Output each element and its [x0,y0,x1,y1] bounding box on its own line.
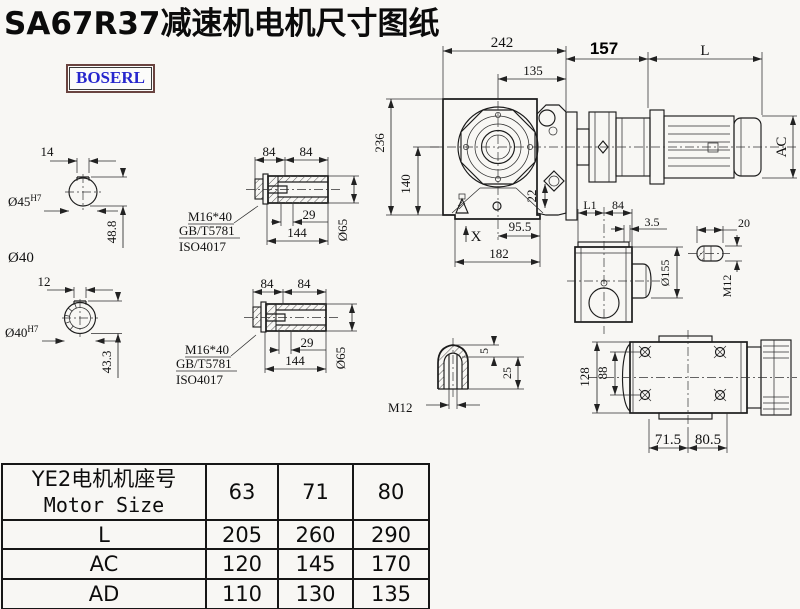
label-bolt: M16*40 [188,209,232,224]
motor-size-table: YE2电机机座号 Motor Size 63 71 80 L 205 260 2… [1,463,430,609]
dim-bore-fit: H7 [27,324,38,334]
dim-length: 144 [285,353,305,368]
dim-depth: 29 [301,335,314,350]
bushing-detail-bottom: 84 84 29 144 Ø65 M16*40 GB/T5781 ISO4017 [176,276,357,387]
dim-84b: 84 [298,276,312,291]
cell-value: 130 [278,579,353,609]
dim-bore-dia: Ø45H7 [8,193,42,209]
dim-depth: 29 [303,207,316,222]
dim-dia65: Ø65 [335,219,350,241]
table-row-AD: AD 110 130 135 [2,579,429,609]
dim-motor-length: L [700,43,709,59]
dim-bolt-span: 88 [595,367,610,380]
cell-value: 205 [206,520,278,549]
dim-84b: 84 [300,144,314,159]
dim-84a: 84 [263,144,277,159]
row-label: L [2,520,206,549]
dim-tip: 5 [477,348,491,354]
protective-cap-detail: 5 25 M12 [388,337,524,415]
label-std-gb: GB/T5781 [179,223,235,238]
dim-bore-fit: H7 [30,193,41,203]
cell-value: 260 [278,520,353,549]
gearbox-side-view: L1 84 3.5 Ø155 20 M12 [567,198,750,334]
dim-key-len: 20 [738,216,750,230]
label-std-iso: ISO4017 [176,372,223,387]
cell-value: 290 [353,520,429,549]
table-row-L: L 205 260 290 [2,520,429,549]
dim-key-width: 14 [41,144,55,159]
dim-bore-dia-value: Ø40 [5,325,27,340]
header-motor-size-cell: YE2电机机座号 Motor Size [2,464,206,520]
dim-w84: 84 [612,198,624,212]
dim-bore-dia-value: Ø45 [8,194,30,209]
dim-left: 71.5 [655,432,681,448]
dim-motor-dia: AC [774,137,790,158]
gearbox-motor-front-view: 242 135 157 L 236 140 22 AC X 95.5 [372,35,797,267]
bushing-detail-top: 84 84 29 144 Ø65 M16*40 GB/T5781 ISO4017 [179,144,359,254]
header-label-en: Motor Size [3,492,205,518]
dim-key-height: 48.8 [104,221,119,244]
dim-height: 128 [577,367,592,387]
label-shaft-dia: Ø40 [8,250,34,266]
dim-height-center: 140 [398,174,413,194]
label-std-gb: GB/T5781 [176,356,232,371]
dim-right: 80.5 [695,432,721,448]
dim-depth: 25 [500,367,514,379]
dim-84a: 84 [261,276,275,291]
cell-value: 120 [206,549,278,579]
row-label: AC [2,549,206,579]
dim-dia65: Ø65 [333,347,348,369]
header-label-cn: YE2电机机座号 [3,466,205,492]
dim-gap: 3.5 [645,215,660,229]
dim-flange-dia: Ø155 [658,260,672,287]
label-std-iso: ISO4017 [179,239,226,254]
dim-width-center: 135 [523,63,543,78]
dim-width-total: 242 [491,35,514,51]
dim-key-width: 12 [38,274,51,289]
table-header-row: YE2电机机座号 Motor Size 63 71 80 [2,464,429,520]
cell-value: 145 [278,549,353,579]
dim-key-height: 43.3 [99,351,114,374]
dim-plug: 22 [524,190,539,203]
row-label: AD [2,579,206,609]
header-col-71: 71 [278,464,353,520]
label-x-mark: X [471,229,482,245]
dim-base: 182 [489,246,509,261]
dim-bore-dia: Ø40H7 [5,324,39,340]
cell-value: 135 [353,579,429,609]
dim-width-input: 157 [590,39,618,58]
dim-l1: L1 [583,198,596,212]
dim-thread: M12 [388,400,413,415]
dim-foot: 95.5 [509,219,532,234]
drawing-sheet: SA67R37减速机电机尺寸图纸 BOSERL 14 Ø45H7 [0,0,800,609]
header-col-80: 80 [353,464,429,520]
dim-thread: M12 [720,275,734,298]
shaft-section-top-view: 14 Ø45H7 48.8 Ø40 [8,144,127,266]
gearbox-top-view: 128 88 71.5 80.5 [577,330,797,453]
cell-value: 170 [353,549,429,579]
cell-value: 110 [206,579,278,609]
table-row-AC: AC 120 145 170 [2,549,429,579]
header-col-63: 63 [206,464,278,520]
label-bolt: M16*40 [185,342,229,357]
shaft-section-bottom-view: 12 Ø40H7 43.3 [5,274,122,378]
dim-length: 144 [287,225,307,240]
dim-height-total: 236 [372,133,387,153]
